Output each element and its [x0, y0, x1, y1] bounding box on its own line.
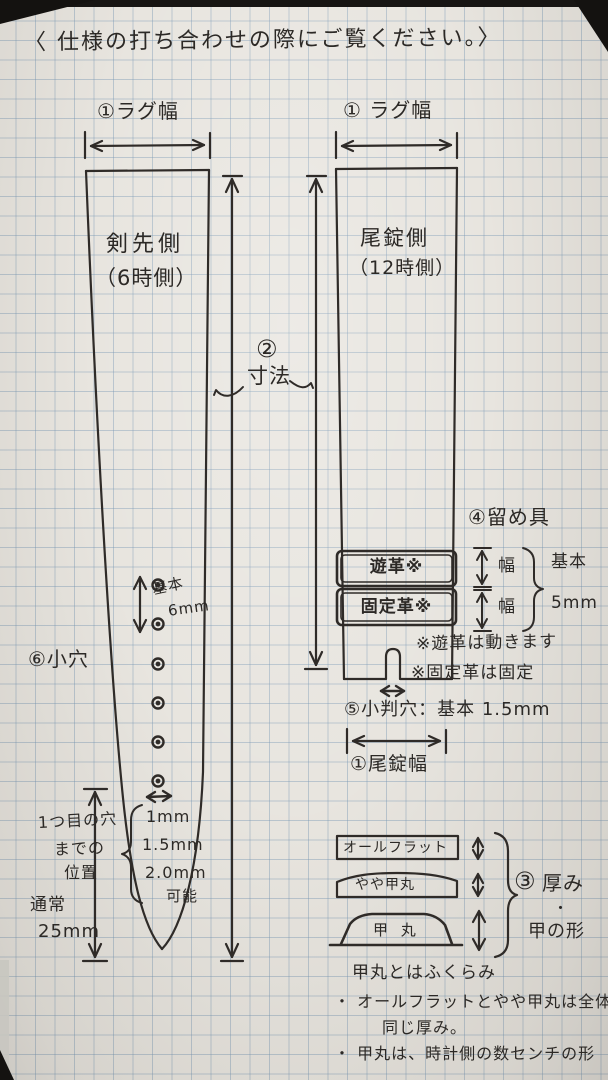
hole-pitch-arrow — [134, 577, 146, 632]
dimension-number: ② — [256, 336, 279, 364]
hole-gap-note: 可能 — [166, 888, 198, 905]
hole-gap-size-3: 2.0mm — [145, 864, 207, 882]
buckle-width-arrow — [347, 729, 446, 753]
thickness-group-label-2: 甲の形 — [528, 922, 585, 943]
thickness-group-dot: ・ — [553, 900, 569, 917]
bottom-note-4: ・ 甲丸は、時計側の数センチの形 — [334, 1045, 595, 1063]
keeper-brace — [523, 548, 543, 631]
hole-gap-size-1: 1mm — [146, 808, 190, 826]
keeper-width-label-1: 幅 — [498, 557, 516, 577]
right-side-sub: （12時側） — [349, 258, 455, 280]
right-length-arrow — [305, 176, 327, 669]
thickness-group-label-1: 厚み — [542, 872, 584, 895]
left-lug-width-arrow — [85, 132, 210, 158]
bottom-note-1: 甲丸とはふくらみ — [352, 964, 496, 984]
left-side-sub: （6時側） — [95, 266, 197, 290]
left-length-arrow — [221, 176, 243, 961]
page-title: 〈 仕様の打ち合わせの際にご覧ください。〉 — [24, 26, 502, 56]
bottom-note-3: 同じ厚み。 — [382, 1019, 467, 1037]
loose-keeper-label: 遊革※ — [337, 558, 456, 578]
buckle-width-label: ①尾錠幅 — [350, 754, 428, 776]
oval-hole-label: ⑤小判穴：基本 1.5mm — [344, 700, 551, 721]
loose-keeper-note: ※遊革は動きます — [416, 633, 558, 655]
small-holes-label: ⑥小穴 — [28, 648, 89, 671]
fixed-keeper-label: 固定革※ — [337, 598, 456, 618]
first-hole-note-4: 通常 — [30, 896, 66, 916]
fastener-label: ④留め具 — [468, 506, 550, 529]
left-side-name: 剣先側 — [106, 232, 184, 257]
dimension-label: 寸法 — [247, 364, 291, 388]
bottom-note-2: ・ オールフラットとやや甲丸は全体が — [334, 993, 608, 1011]
keeper-width-arrows — [474, 548, 491, 631]
hole-gap-size-2: 1.5mm — [142, 836, 204, 854]
right-lug-width-label: ① ラグ幅 — [343, 99, 432, 122]
keeper-width-basic: 基本 — [551, 553, 587, 573]
strap-holes — [153, 580, 164, 787]
cross-section-flat-label: オールフラット — [343, 840, 448, 856]
keeper-width-value: 5mm — [551, 594, 598, 614]
first-hole-note-3: 位置 — [64, 864, 98, 882]
oval-hole-width-arrow — [381, 686, 404, 696]
hand-drawn-strokes — [0, 0, 608, 1080]
cross-section-thickness-arrows — [473, 838, 485, 950]
cross-section-dome-label: 甲 丸 — [373, 922, 420, 939]
right-lug-width-arrow — [336, 132, 457, 158]
fixed-keeper-note: ※固定革は固定 — [411, 664, 534, 684]
keeper-width-label-2: 幅 — [498, 598, 516, 618]
left-lug-width-label: ①ラグ幅 — [97, 100, 179, 123]
cross-section-semi-dome-label: やや甲丸 — [355, 877, 415, 893]
thickness-group-number: ③ — [514, 868, 537, 896]
right-side-name: 尾錠側 — [360, 226, 429, 250]
first-hole-note-2: までの — [54, 839, 106, 859]
hole-gap-arrow — [147, 791, 171, 802]
first-hole-note-5: 25mm — [38, 922, 100, 943]
